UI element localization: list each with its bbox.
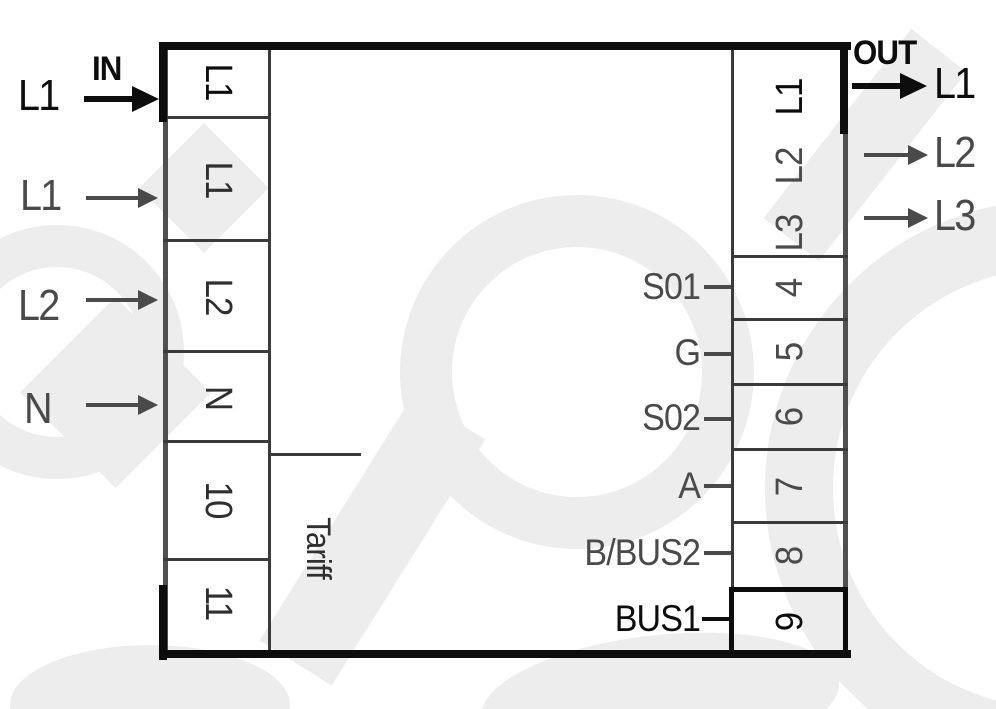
signal-label: S01 (544, 268, 700, 305)
signal-connector (704, 352, 731, 356)
terminal-cell-label: 7 (771, 478, 809, 497)
phase-in-label: L2 (18, 284, 58, 328)
phase-out-label: L1 (934, 62, 974, 106)
signal-label: B/BUS2 (544, 534, 700, 571)
arrow-shaft (852, 83, 902, 89)
terminal-cell-label: L1 (771, 78, 809, 115)
phase-in-label: L1 (20, 174, 60, 218)
cell-divider (733, 521, 848, 524)
cell-divider (163, 239, 271, 242)
arrow-right-icon (908, 145, 928, 165)
arrow-shaft (864, 153, 910, 157)
terminal-cell-label: L2 (199, 278, 237, 315)
signal-connector (704, 417, 731, 421)
arrow-shaft (86, 196, 140, 200)
cell-divider (733, 318, 848, 321)
arrow-right-icon (138, 395, 158, 415)
signal-connector (704, 551, 731, 555)
phase-out-label: L3 (934, 194, 974, 238)
signal-label: BUS1 (544, 600, 700, 637)
signal-connector (702, 617, 732, 621)
out-tag: OUT (853, 36, 916, 70)
terminal-cell-label: L1 (199, 161, 237, 198)
signal-connector (704, 484, 731, 488)
terminal-cell-label: 5 (771, 343, 809, 362)
signal-label: A (544, 467, 700, 504)
arrow-right-icon (132, 86, 159, 112)
arrow-right-icon (138, 188, 158, 208)
tariff-label: Tariff (301, 517, 335, 579)
terminal-cell-label: 10 (199, 481, 237, 518)
wiring-diagram: L1 L1 L2 N 10 11 Tariff L1 L2 L3 4 5 6 7… (0, 0, 996, 709)
signal-label: S02 (544, 399, 700, 436)
arrow-shaft (86, 403, 140, 407)
right-column-line (731, 45, 734, 658)
cell-divider (163, 116, 271, 119)
cell-divider (163, 350, 271, 353)
signal-connector (704, 285, 731, 289)
terminal-cell-label: 11 (199, 586, 237, 620)
cell-divider (163, 440, 271, 443)
cell-divider (163, 558, 271, 561)
terminal-cell-label: L2 (771, 147, 809, 184)
terminal-cell-label: N (199, 386, 237, 410)
device-outline-top (160, 42, 851, 50)
signal-label: G (544, 334, 700, 371)
terminal-cell-label: 8 (771, 547, 809, 566)
phase-out-label: L2 (934, 131, 974, 175)
cell-divider (733, 383, 848, 386)
device-outline-left-top (159, 42, 167, 122)
phase-in-label: L1 (18, 74, 58, 118)
arrow-shaft (86, 298, 140, 302)
tariff-line (271, 453, 361, 456)
cell-divider (733, 448, 848, 451)
terminal-cell-label: L3 (771, 214, 809, 251)
arrow-shaft (84, 96, 136, 102)
arrow-shaft (864, 216, 910, 220)
terminal-cell-label: L1 (199, 63, 237, 100)
arrow-right-icon (908, 208, 928, 228)
device-outline-left-bottom (159, 585, 167, 660)
arrow-right-icon (900, 73, 927, 99)
terminal-cell-label: 4 (771, 279, 809, 298)
in-tag: IN (92, 52, 121, 86)
terminal-cell-label: 6 (771, 408, 809, 427)
device-outline-right-top (840, 42, 848, 134)
terminal-cell-label: 9 (771, 613, 809, 632)
arrow-right-icon (138, 290, 158, 310)
cell-divider (733, 255, 848, 258)
phase-in-label: N (24, 387, 51, 431)
